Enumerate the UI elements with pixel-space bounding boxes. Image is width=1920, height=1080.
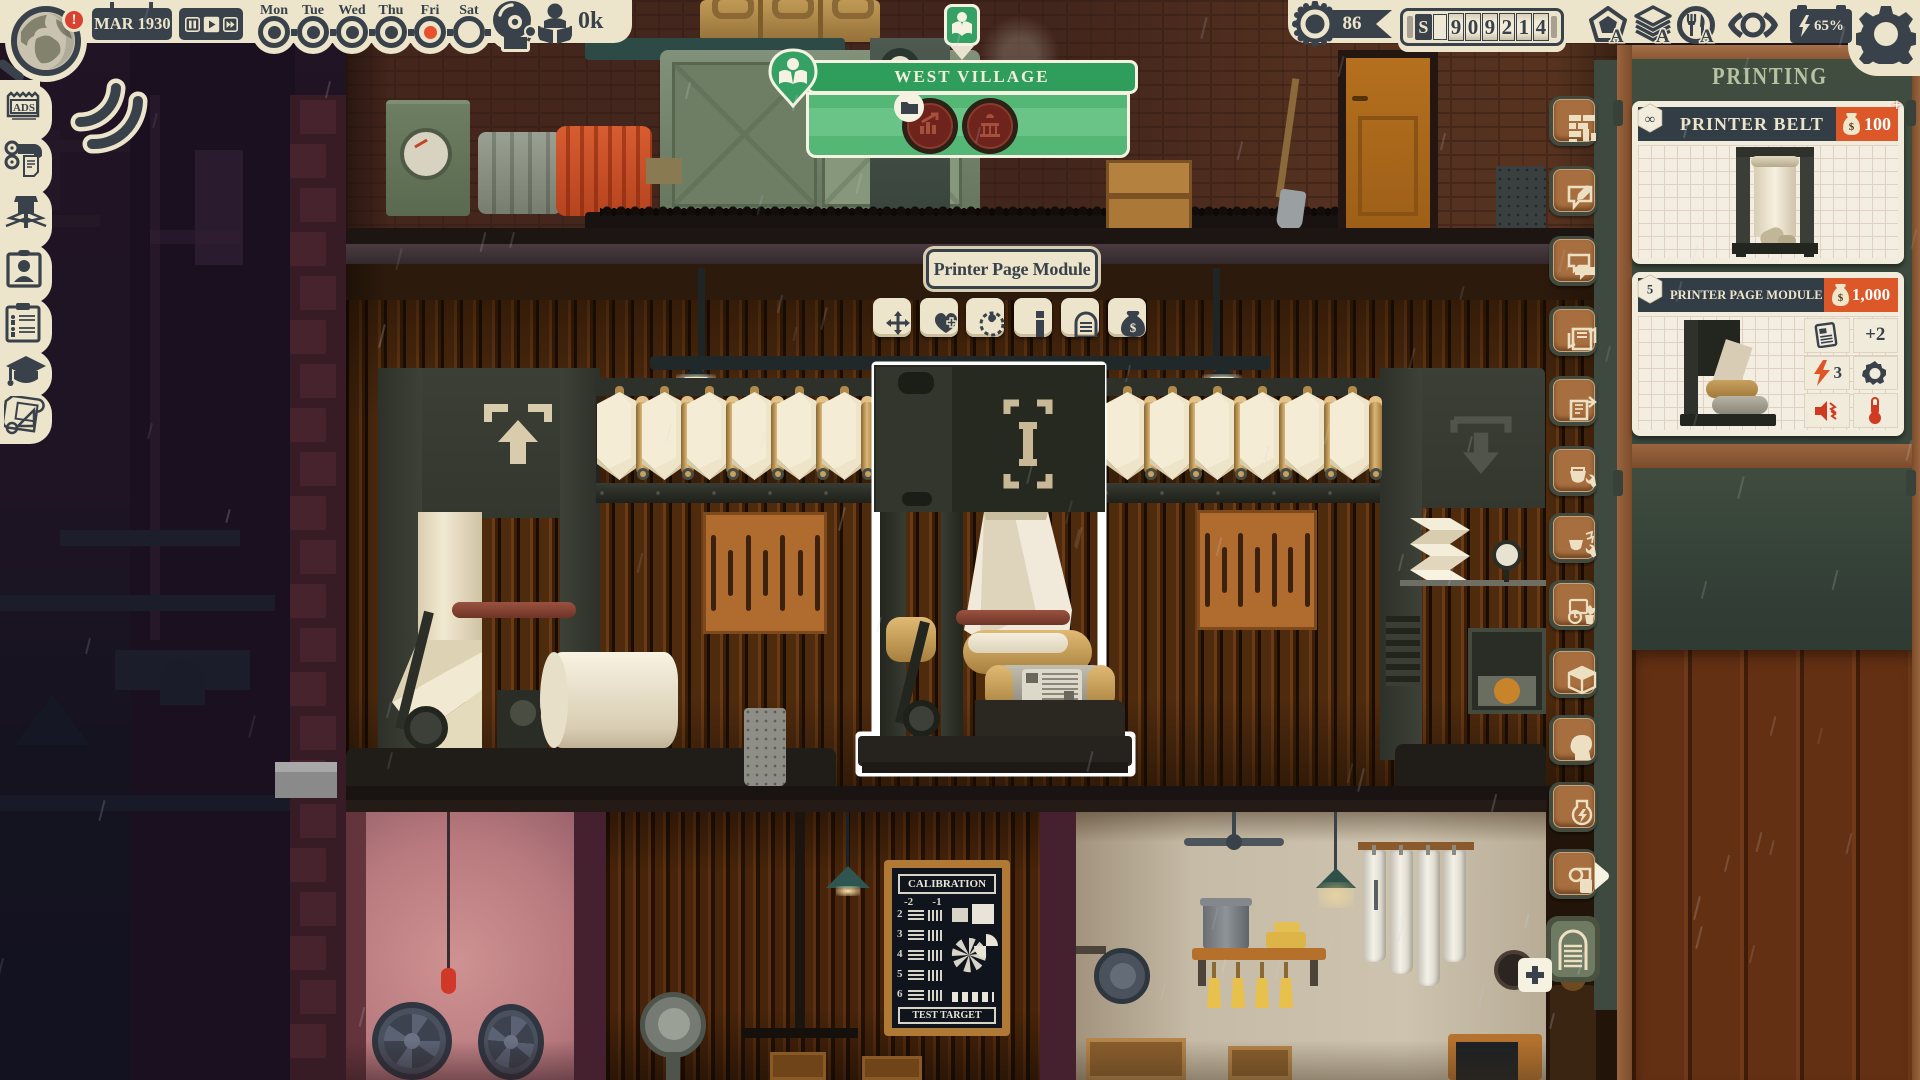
svg-text:ADS: ADS xyxy=(13,102,35,114)
